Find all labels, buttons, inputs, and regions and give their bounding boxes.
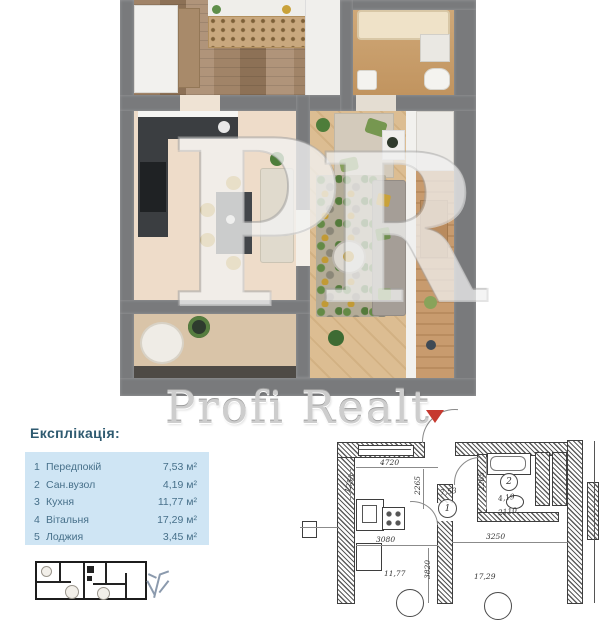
explication-row: 5 Лоджия 3,45 м² (34, 531, 197, 543)
kitchen-door-arc (410, 501, 438, 525)
wall-left (120, 0, 134, 396)
room-area: 4,19 м² (163, 479, 197, 491)
floorplan-3d-render: P R (120, 0, 476, 400)
room-name: Вітальня (46, 514, 157, 526)
door-gap-kitchen-living (296, 210, 310, 266)
door-gap-entry-kitchen (180, 95, 220, 111)
living-plant-top (316, 118, 330, 132)
tech-wall-right-outer (588, 483, 598, 539)
dim-label-2265-hall: 2265 (413, 476, 422, 495)
mini-plan-fixture (41, 566, 52, 577)
tech-stove (382, 507, 405, 530)
kitchen-appliance (140, 162, 166, 212)
mini-plan-fixture (97, 587, 110, 600)
tech-wall-left (338, 445, 354, 603)
mini-plan-wall (105, 563, 107, 585)
loggia-window-strip (406, 111, 416, 378)
explication-row: 2 Сан.вузол 4,19 м² (34, 479, 197, 491)
entry-closet (305, 0, 340, 95)
room-number: 2 (34, 479, 46, 491)
dining-chair-3 (226, 176, 241, 190)
sofa-pillow-green-1 (375, 227, 391, 241)
room1-number-circle: 1 (438, 499, 457, 518)
mini-plan-fixture-dark (87, 566, 94, 573)
kitchen-number-circle-clipped (396, 589, 424, 617)
dim-label-3820: 3820 (423, 560, 432, 579)
bathroom-sink (357, 70, 377, 90)
entry-wardrobe (134, 5, 178, 93)
dining-chair-2 (200, 233, 215, 247)
tech-right-edge-line (594, 441, 595, 603)
mini-plan-fixture (65, 585, 79, 599)
mini-plan-wall (37, 581, 71, 583)
room-name: Передпокій (46, 461, 163, 473)
sofa-pillow-green-2 (378, 288, 391, 300)
room-number: 3 (34, 496, 46, 508)
coffee-table-decor (343, 251, 354, 262)
tech-vent-shaft-2 (553, 453, 566, 505)
explication-title: Експлікація: (30, 425, 120, 441)
technical-floorplan: 4720 2265 1255 2265 3080 3250 3820 2110 … (310, 423, 600, 603)
room-area: 11,77 м² (158, 496, 197, 508)
sofa-pillow-mustard (376, 193, 391, 207)
kitchen-area-label: 11,77 (384, 569, 405, 578)
tech-balcony-line (300, 527, 338, 528)
watermark-brand-text: Profi Realt (118, 381, 478, 434)
toilet (424, 68, 450, 90)
mini-plan-wall (83, 563, 85, 598)
explication-panel: 1 Передпокій 7,53 м² 2 Сан.вузол 4,19 м²… (25, 452, 209, 545)
room-number: 4 (34, 514, 46, 526)
entry-marker-triangle-icon (426, 410, 444, 423)
kitchen-plant (270, 152, 284, 166)
entry-plant-1 (212, 5, 221, 14)
tech-kitchen-sink (362, 505, 377, 523)
room1-area-label: 7,53 (439, 486, 457, 497)
dim-label-2265-bath: 2265 (477, 472, 486, 491)
mini-building-plan (35, 561, 147, 600)
lounge-chair (140, 322, 184, 364)
tech-vent-shaft-1 (536, 453, 549, 505)
kitchen-sofa (260, 168, 294, 263)
dim-label-4720: 4720 (380, 458, 399, 467)
tech-balcony-box (302, 521, 317, 538)
room2-number-circle: 2 (500, 473, 518, 491)
loggia-decor (426, 340, 436, 350)
tech-window-line (359, 449, 411, 450)
room-number: 5 (34, 531, 46, 543)
tech-wall-right (568, 441, 582, 603)
dim-line-3080 (356, 545, 438, 546)
dining-table (216, 192, 252, 254)
dining-chair-4 (226, 256, 241, 270)
mini-plan-wall (125, 573, 127, 598)
dim-line-4720 (356, 467, 438, 468)
dim-line-3250 (452, 542, 568, 543)
room-area: 17,29 м² (157, 514, 197, 526)
tv-stand-plant (387, 137, 398, 148)
room-name: Кухня (46, 496, 158, 508)
dim-label-3080: 3080 (376, 535, 395, 544)
living-plant-bottom (328, 330, 344, 346)
living-area-label: 17,29 (474, 572, 495, 581)
lounge-desk (134, 366, 296, 378)
entry-bench-base (208, 0, 320, 16)
dining-chair-1 (200, 203, 215, 217)
mini-plan-wall (93, 583, 127, 585)
tech-window-top (358, 445, 414, 456)
explication-row: 1 Передпокій 7,53 м² (34, 461, 197, 473)
room-area: 7,53 м² (163, 461, 197, 473)
wall-top-right (340, 0, 476, 10)
dim-label-3250: 3250 (486, 532, 505, 541)
loggia-cabinet (416, 111, 454, 171)
loggia-stool (424, 296, 437, 309)
explication-row: 4 Вітальня 17,29 м² (34, 514, 197, 526)
loggia-desk (420, 200, 448, 258)
bathroom-cabinet (420, 34, 450, 62)
door-gap-entry-living (356, 95, 396, 111)
kitchen-sink (218, 121, 230, 133)
room-number: 1 (34, 461, 46, 473)
entry-shelf-unit (178, 8, 200, 88)
wall-lounge-horizontal (120, 300, 310, 314)
room1-number: 1 (445, 504, 451, 514)
room-name: Лоджия (46, 531, 163, 543)
explication-row: 3 Кухня 11,77 м² (34, 496, 197, 508)
entry-plant-2 (282, 5, 291, 14)
lounge-plant (188, 316, 210, 338)
mini-plan-wall (59, 563, 61, 583)
dim-line-2265-bath (486, 457, 487, 509)
tech-bathtub-inner (490, 456, 526, 471)
dining-table-decor (226, 215, 235, 224)
mini-plan-fixture-dark (87, 576, 92, 581)
dim-line-2265-hall (423, 469, 424, 509)
entry-bench-cushion (208, 16, 312, 48)
tech-fridge (356, 543, 382, 571)
room-area: 3,45 м² (163, 531, 197, 543)
room-name: Сан.вузол (46, 479, 163, 491)
room2-number: 2 (506, 477, 512, 487)
tech-wall-bath-horizontal (478, 513, 558, 521)
living-number-circle-clipped (484, 592, 512, 620)
wall-entry-bath-vertical (340, 0, 353, 111)
wall-right (454, 0, 476, 396)
